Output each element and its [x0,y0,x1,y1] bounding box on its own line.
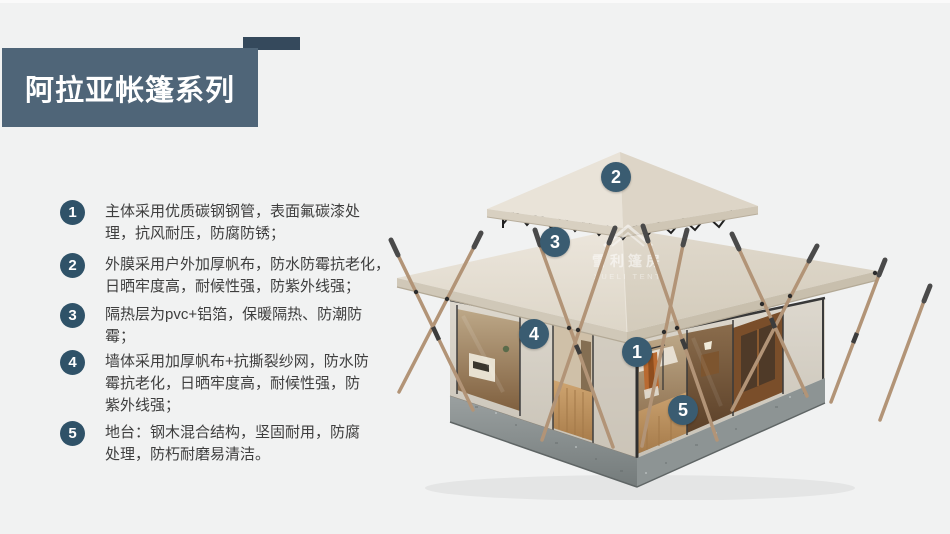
top-edge-highlight [0,0,950,3]
feature-text-4: 墙体采用加厚帆布+抗撕裂纱网，防水防 霉抗老化，日晒牢度高，耐候性强，防 紫外线… [105,351,405,417]
tent-marker-2: 2 [601,162,631,192]
watermark-en: XUELI TENT [594,272,662,281]
feature-badge-2: 2 [60,253,85,278]
feature-text-2: 外膜采用户外加厚帆布，防水防霉抗老化， 日晒牢度高，耐候性强，防紫外线强； [105,254,405,298]
tent-illustration: 雪利篷房 XUELI TENT [385,140,950,500]
feature-text-1: 主体采用优质碳钢钢管，表面氟碳漆处 理，抗风耐压，防腐防锈； [105,201,405,245]
feature-item-5: 5 地台：钢木混合结构，坚固耐用，防腐 处理，防朽耐磨易清洁。 [60,421,405,466]
feature-badge-5: 5 [60,421,85,446]
feature-text-5: 地台：钢木混合结构，坚固耐用，防腐 处理，防朽耐磨易清洁。 [105,422,405,466]
feature-badge-1: 1 [60,200,85,225]
tent-marker-5: 5 [668,395,698,425]
slide: 阿拉亚帐篷系列 1 主体采用优质碳钢钢管，表面氟碳漆处 理，抗风耐压，防腐防锈；… [0,0,950,534]
feature-item-1: 1 主体采用优质碳钢钢管，表面氟碳漆处 理，抗风耐压，防腐防锈； [60,200,405,245]
page-title: 阿拉亚帐篷系列 [25,67,235,109]
feature-item-2: 2 外膜采用户外加厚帆布，防水防霉抗老化， 日晒牢度高，耐候性强，防紫外线强； [60,253,405,298]
feature-text-3: 隔热层为pvc+铝箔，保暖隔热、防潮防 霉； [105,304,405,348]
feature-badge-3: 3 [60,303,85,328]
feature-badge-4: 4 [60,350,85,375]
title-box: 阿拉亚帐篷系列 [2,48,258,127]
tent-marker-1: 1 [622,337,652,367]
tent-marker-3: 3 [540,227,570,257]
tent-marker-4: 4 [519,319,549,349]
feature-item-3: 3 隔热层为pvc+铝箔，保暖隔热、防潮防 霉； [60,303,405,348]
feature-item-4: 4 墙体采用加厚帆布+抗撕裂纱网，防水防 霉抗老化，日晒牢度高，耐候性强，防 紫… [60,350,405,417]
